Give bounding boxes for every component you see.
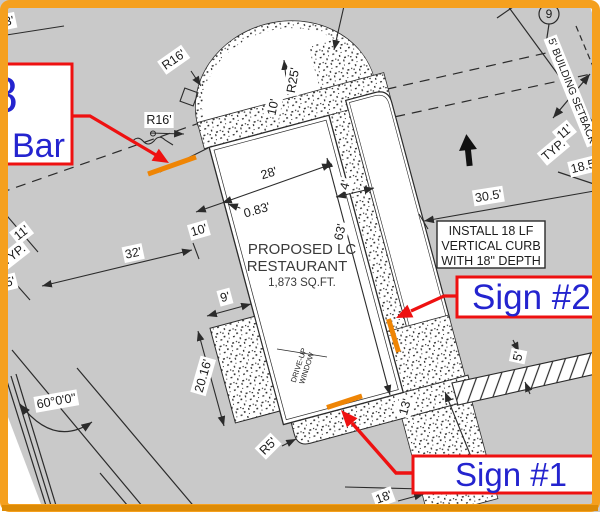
building-area: 1,873 SQ.FT. [268,277,336,289]
label-r16-lower: R16' [144,112,173,128]
svg-text:R16': R16' [146,113,171,127]
building-name-line2: RESTAURANT [247,258,348,275]
sign2-label-text: Sign #2 [472,278,591,317]
bar-label-text: Bar [12,127,65,165]
sign1-label-text: Sign #1 [455,456,567,493]
orange-frame-bottom [2,505,598,511]
curb-note-line2: VERTICAL CURB [441,239,540,253]
site-plan-screenshot: PROPOSED LC RESTAURANT 1,873 SQ.FT. INST… [0,0,600,512]
svg-text:9: 9 [546,7,553,21]
curb-note-box: INSTALL 18 LF VERTICAL CURB WITH 18" DEP… [437,221,545,268]
curb-note-line1: INSTALL 18 LF [449,224,534,238]
label-keynote-9: 9 [546,7,553,21]
building-name-line1: PROPOSED LC [248,241,357,258]
site-plan-drawing: PROPOSED LC RESTAURANT 1,873 SQ.FT. INST… [0,0,600,512]
curb-note-line3: WITH 18" DEPTH [441,254,541,268]
